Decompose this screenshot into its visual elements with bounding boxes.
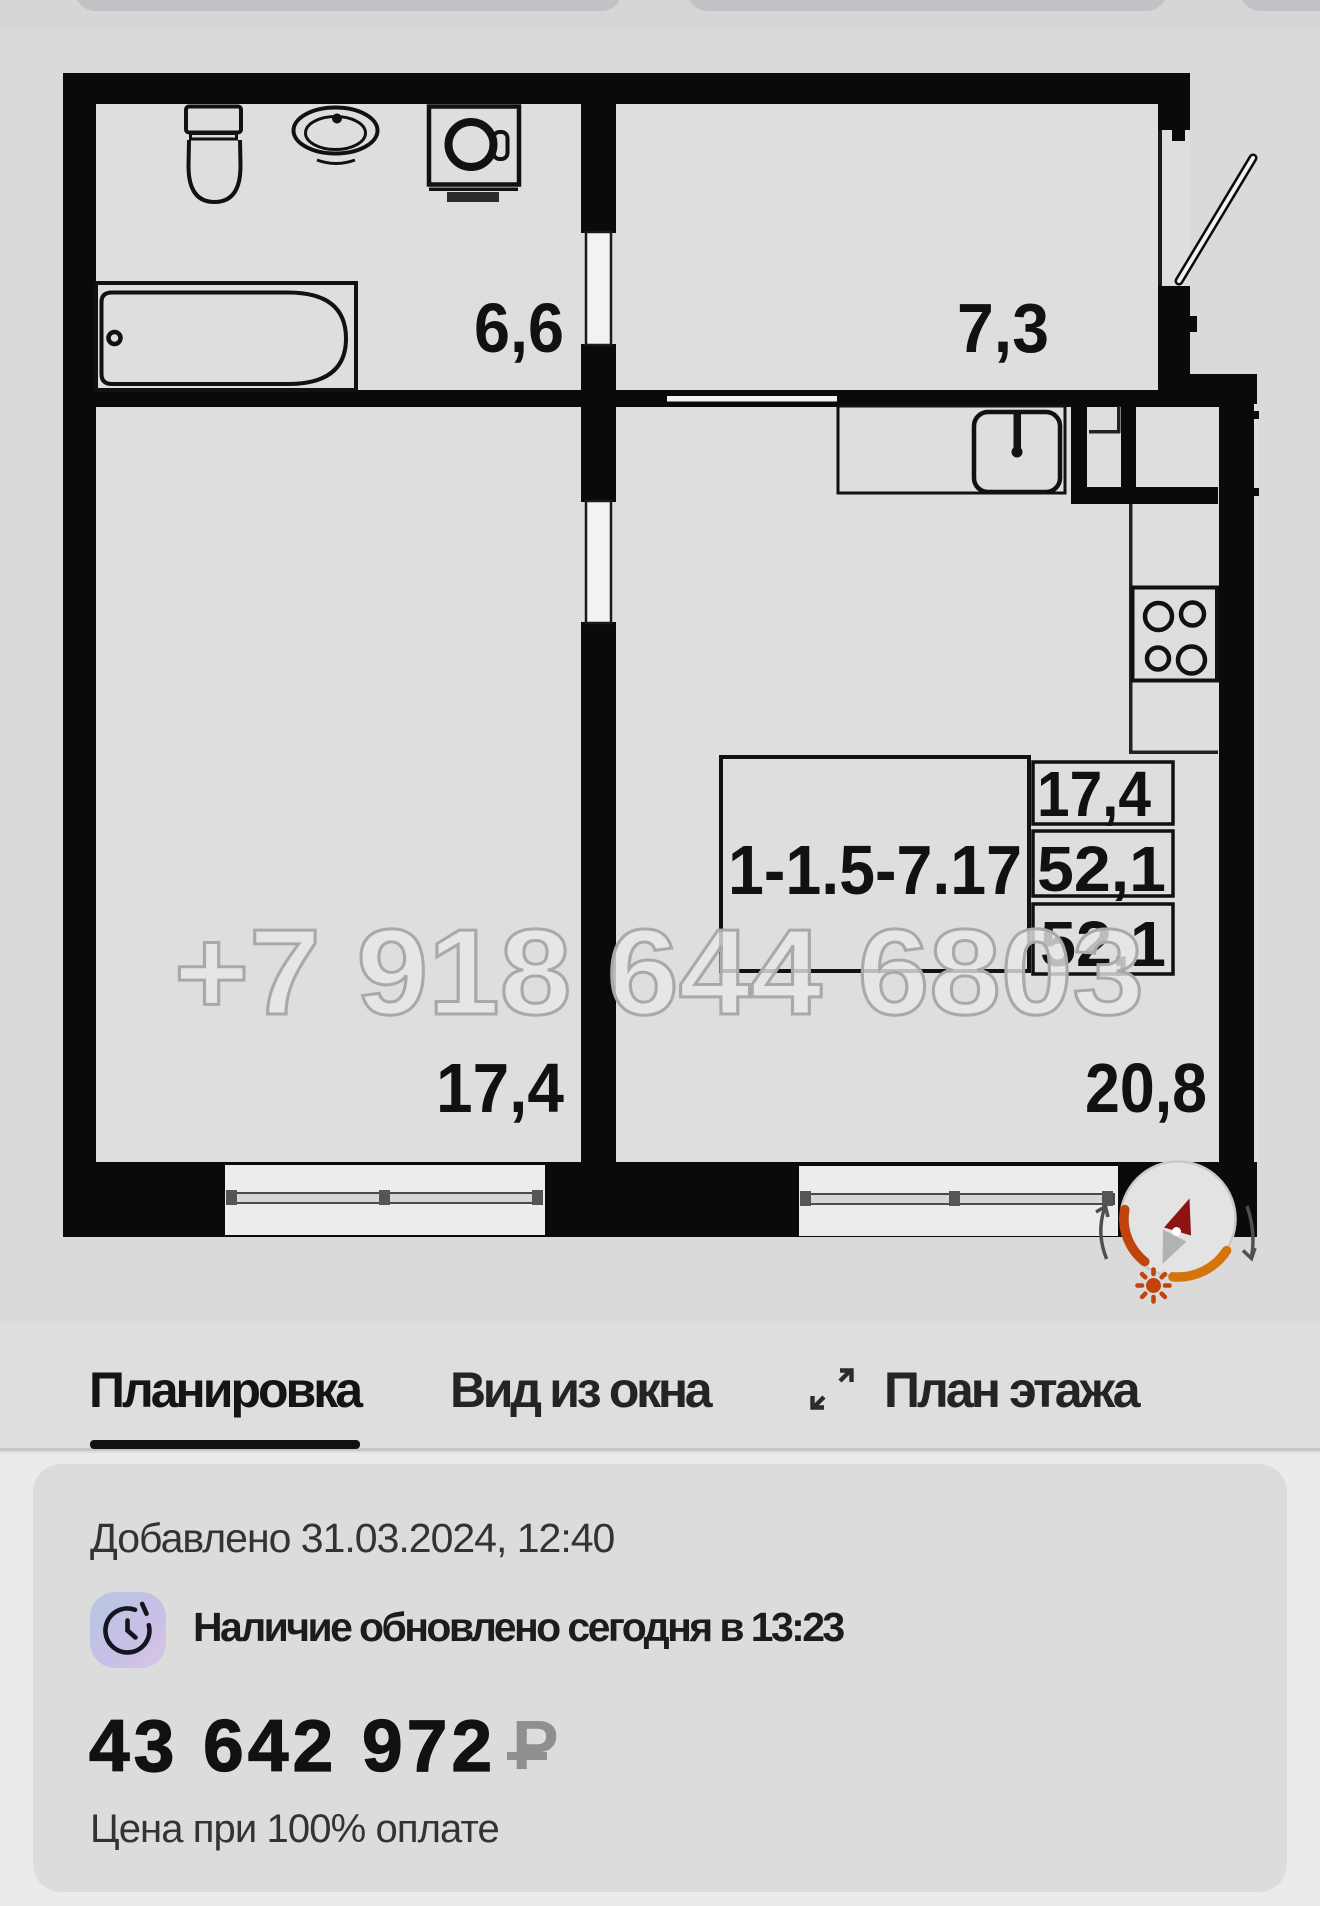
svg-text:+7 918 644 6803: +7 918 644 6803 bbox=[174, 904, 1144, 1040]
svg-text:17,4: 17,4 bbox=[436, 1049, 564, 1127]
svg-text:6,6: 6,6 bbox=[474, 289, 564, 367]
svg-text:7,3: 7,3 bbox=[957, 289, 1049, 367]
svg-text:1-1.5-7.17: 1-1.5-7.17 bbox=[728, 831, 1022, 909]
svg-text:17,4: 17,4 bbox=[1037, 758, 1151, 830]
svg-text:20,8: 20,8 bbox=[1085, 1049, 1207, 1127]
svg-text:52,1: 52,1 bbox=[1037, 833, 1166, 905]
